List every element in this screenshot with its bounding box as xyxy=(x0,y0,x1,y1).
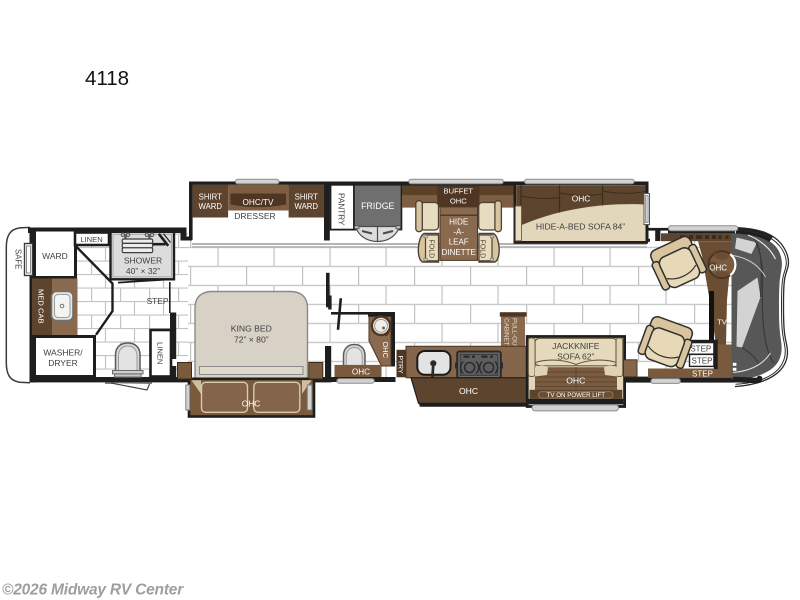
svg-text:CABINET: CABINET xyxy=(503,318,510,346)
svg-text:PULL-OUT: PULL-OUT xyxy=(511,318,518,350)
svg-text:STEP: STEP xyxy=(692,369,713,378)
svg-text:SHIRT: SHIRT xyxy=(199,193,222,202)
svg-text:©2026 Midway RV Center: ©2026 Midway RV Center xyxy=(2,582,184,599)
svg-text:72” × 80”: 72” × 80” xyxy=(234,335,269,345)
svg-text:LEAF: LEAF xyxy=(449,238,469,247)
svg-text:BUFFET: BUFFET xyxy=(444,187,474,196)
svg-text:TV: TV xyxy=(717,318,727,327)
svg-text:DRESSER: DRESSER xyxy=(234,211,276,221)
svg-text:OHC: OHC xyxy=(381,342,390,359)
svg-text:OHC: OHC xyxy=(459,386,478,396)
svg-text:OHC: OHC xyxy=(709,263,727,272)
svg-text:PTRY: PTRY xyxy=(397,356,404,374)
svg-text:OHC: OHC xyxy=(566,375,585,385)
svg-text:40” × 32”: 40” × 32” xyxy=(126,266,160,276)
svg-text:OHC/TV: OHC/TV xyxy=(243,198,274,207)
svg-text:SHOWER: SHOWER xyxy=(124,256,162,266)
svg-text:TV ON POWER LIFT: TV ON POWER LIFT xyxy=(547,392,606,399)
svg-text:KING BED: KING BED xyxy=(231,324,272,334)
svg-text:WARD: WARD xyxy=(295,202,319,211)
svg-text:WASHER/: WASHER/ xyxy=(43,348,83,358)
svg-text:MED CAB: MED CAB xyxy=(37,289,46,324)
svg-text:OHC: OHC xyxy=(242,399,261,409)
svg-text:DRYER: DRYER xyxy=(48,358,78,368)
svg-text:OHC: OHC xyxy=(352,368,370,377)
svg-text:OHC: OHC xyxy=(450,197,467,206)
svg-text:FRIDGE: FRIDGE xyxy=(361,201,394,211)
svg-text:LINEN: LINEN xyxy=(156,342,165,364)
svg-text:WARD: WARD xyxy=(199,202,223,211)
svg-text:-A-: -A- xyxy=(453,228,464,237)
svg-text:OHC: OHC xyxy=(572,194,591,204)
svg-text:STEP: STEP xyxy=(692,357,713,366)
svg-text:LINEN: LINEN xyxy=(80,235,102,244)
svg-text:HIDE: HIDE xyxy=(449,218,468,227)
svg-text:PANTRY: PANTRY xyxy=(337,193,346,226)
svg-text:DINETTE: DINETTE xyxy=(442,248,476,257)
svg-text:4118: 4118 xyxy=(85,67,129,90)
svg-text:HIDE-A-BED SOFA 84”: HIDE-A-BED SOFA 84” xyxy=(536,222,625,232)
svg-text:FOLD: FOLD xyxy=(479,240,486,259)
svg-text:STEP: STEP xyxy=(690,345,711,354)
svg-text:STEP: STEP xyxy=(147,296,169,306)
svg-text:SAFE: SAFE xyxy=(14,249,23,269)
svg-text:SOFA 62”: SOFA 62” xyxy=(557,352,594,362)
svg-text:JACKKNIFE: JACKKNIFE xyxy=(552,341,600,351)
svg-text:SHIRT: SHIRT xyxy=(295,193,318,202)
svg-text:FOLD: FOLD xyxy=(428,240,435,259)
svg-text:WARD: WARD xyxy=(42,251,68,261)
